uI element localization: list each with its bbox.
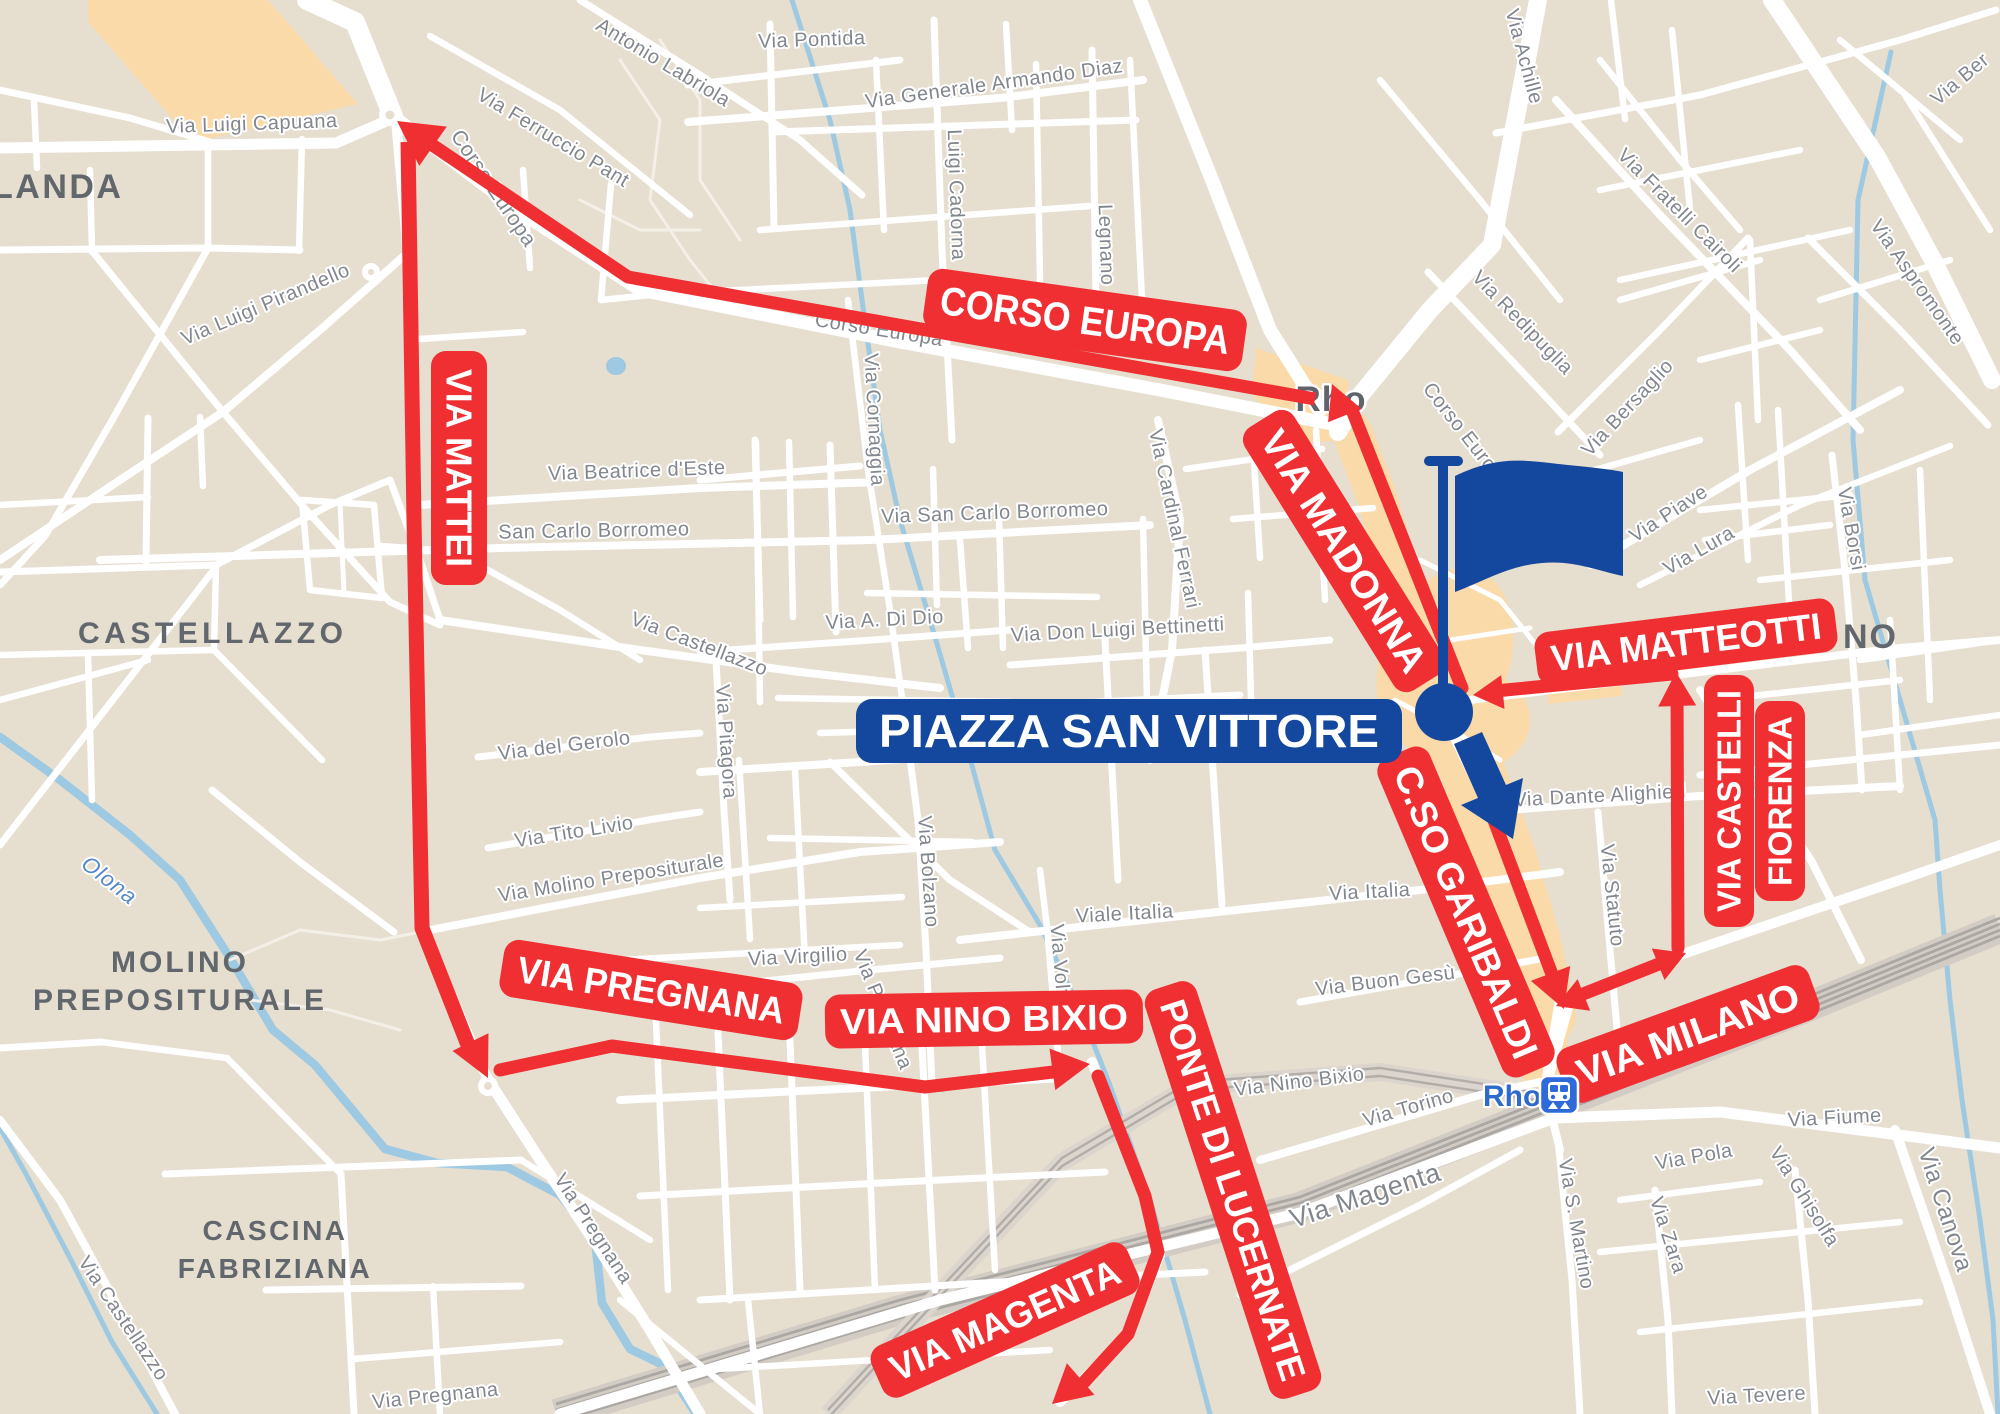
svg-text:Rho: Rho: [1483, 1080, 1541, 1113]
svg-text:CASTELLAZZO: CASTELLAZZO: [78, 617, 347, 650]
svg-text:VIA NINO BIXIO: VIA NINO BIXIO: [840, 996, 1129, 1042]
svg-text:PIAZZA SAN VITTORE: PIAZZA SAN VITTORE: [879, 705, 1379, 757]
svg-text:Via Pontida: Via Pontida: [758, 27, 867, 53]
svg-text:Via Italia: Via Italia: [1328, 879, 1411, 905]
svg-text:FABRIZIANA: FABRIZIANA: [178, 1253, 373, 1284]
svg-text:VIA CASTELLI: VIA CASTELLI: [1711, 690, 1748, 912]
svg-text:Luigi Cadorna: Luigi Cadorna: [943, 129, 970, 261]
svg-text:NO: NO: [1843, 618, 1898, 656]
svg-text:FIORENZA: FIORENZA: [1762, 716, 1799, 886]
svg-text:Legnano: Legnano: [1094, 204, 1119, 286]
svg-text:PREPOSITURALE: PREPOSITURALE: [33, 984, 327, 1017]
svg-text:San Carlo Borromeo: San Carlo Borromeo: [498, 518, 690, 543]
svg-text:LANDA: LANDA: [0, 168, 123, 206]
svg-text:MOLINO: MOLINO: [111, 946, 249, 979]
svg-text:VIA MATTEI: VIA MATTEI: [438, 369, 479, 567]
svg-text:CASCINA: CASCINA: [202, 1215, 347, 1246]
